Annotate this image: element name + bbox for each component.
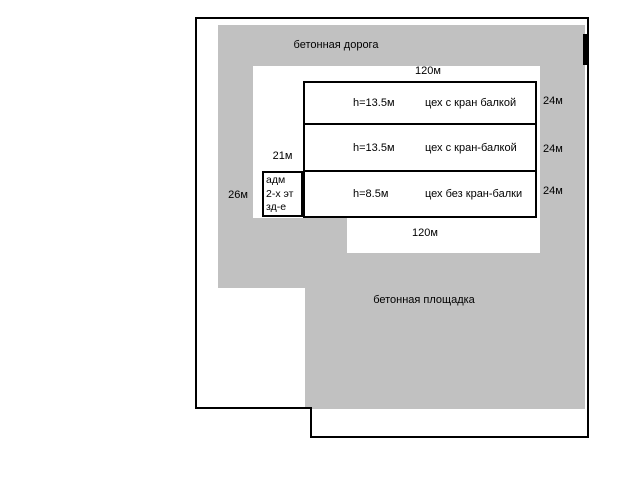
pad-label: бетонная площадка bbox=[344, 294, 504, 307]
boundary-step bbox=[310, 407, 312, 438]
dimension-top-length: 120м bbox=[390, 65, 466, 78]
boundary-top bbox=[195, 17, 589, 19]
dimension-left-width: 26м bbox=[222, 189, 254, 202]
workshop-row-3-name: цех без кран-балки bbox=[425, 188, 522, 200]
workshop-row-3: h=8.5м цех без кран-балки bbox=[305, 170, 535, 216]
boundary-gate-mark bbox=[583, 34, 589, 65]
dimension-row2-depth: 24м bbox=[543, 143, 577, 156]
dimension-row3-depth: 24м bbox=[543, 185, 577, 198]
workshop-row-3-height: h=8.5м bbox=[353, 188, 425, 200]
admin-building-line-1: адм bbox=[266, 174, 301, 188]
admin-building-line-2: 2-х эт bbox=[266, 188, 301, 202]
workshop-row-1: h=13.5м цех с кран балкой bbox=[305, 83, 535, 123]
boundary-left bbox=[195, 17, 197, 409]
workshop-row-2: h=13.5м цех с кран-балкой bbox=[305, 123, 535, 170]
workshop-row-2-name: цех с кран-балкой bbox=[425, 142, 517, 154]
admin-building-line-3: зд-е bbox=[266, 201, 301, 215]
workshop-row-1-height: h=13.5м bbox=[353, 97, 425, 109]
site-plan: бетонная дорога бетонная площадка 120м 1… bbox=[0, 0, 628, 502]
dimension-bottom-length: 120м bbox=[387, 227, 463, 240]
admin-building: адм 2-х эт зд-е bbox=[262, 171, 303, 217]
boundary-bottom-right bbox=[310, 436, 589, 438]
concrete-pad-area bbox=[305, 253, 585, 409]
boundary-right bbox=[587, 17, 589, 438]
dimension-adm-width: 21м bbox=[262, 150, 303, 163]
workshop-row-2-height: h=13.5м bbox=[353, 142, 425, 154]
workshop-building: h=13.5м цех с кран балкой h=13.5м цех с … bbox=[303, 81, 537, 218]
dimension-row1-depth: 24м bbox=[543, 95, 577, 108]
road-label: бетонная дорога bbox=[256, 39, 416, 52]
boundary-bottom-left bbox=[195, 407, 312, 409]
workshop-row-1-name: цех с кран балкой bbox=[425, 97, 516, 109]
